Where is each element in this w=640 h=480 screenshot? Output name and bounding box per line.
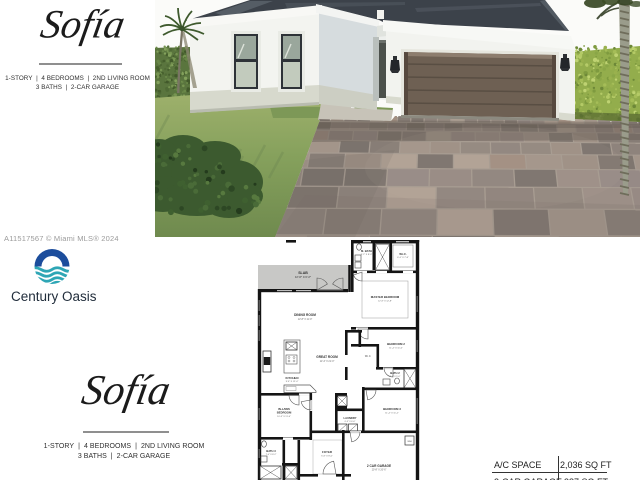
svg-text:12'-8" X 11'-0": 12'-8" X 11'-0" xyxy=(298,319,313,321)
svg-text:9'-6" X 12'-4": 9'-6" X 12'-4" xyxy=(286,381,299,383)
svg-text:W/H: W/H xyxy=(407,441,412,443)
svg-text:6'-4" X 7'-8": 6'-4" X 7'-8" xyxy=(397,257,409,259)
svg-text:LAUNDRY: LAUNDRY xyxy=(344,416,357,420)
svg-text:9'-2" X 8'-0": 9'-2" X 8'-0" xyxy=(361,254,373,256)
svg-text:11'-4" X 11'-6": 11'-4" X 11'-6" xyxy=(389,348,403,350)
svg-text:FOYER: FOYER xyxy=(322,450,333,454)
svg-text:BEDROOM: BEDROOM xyxy=(277,411,292,415)
svg-text:Sofía: Sofía xyxy=(37,2,128,47)
svg-text:SLAB: SLAB xyxy=(298,271,308,275)
svg-text:BEDROOM 3: BEDROOM 3 xyxy=(383,407,401,411)
svg-text:12'-4" X 21'-0": 12'-4" X 21'-0" xyxy=(320,361,335,363)
svg-text:6'-3" X 6'-6": 6'-3" X 6'-6" xyxy=(345,421,356,423)
svg-text:BATH 2: BATH 2 xyxy=(390,371,400,375)
svg-text:W.I.C.: W.I.C. xyxy=(399,252,407,256)
svg-text:DINING ROOM: DINING ROOM xyxy=(294,313,316,317)
svg-text:M. BATH: M. BATH xyxy=(361,249,372,253)
svg-text:5'-8" X 8'-0": 5'-8" X 8'-0" xyxy=(321,456,333,458)
svg-text:2 CAR GARAGE: 2 CAR GARAGE xyxy=(367,464,391,468)
svg-text:11'-4" X 11'-2": 11'-4" X 11'-2" xyxy=(385,413,399,415)
svg-text:20'-8" X 20'-6": 20'-8" X 20'-6" xyxy=(372,470,387,472)
svg-text:BEDROOM 2: BEDROOM 2 xyxy=(387,342,405,346)
svg-text:12'-8" X 12'-8": 12'-8" X 12'-8" xyxy=(378,301,392,303)
svg-text:MASTER BEDROOM: MASTER BEDROOM xyxy=(371,295,400,299)
svg-text:KITCHEN: KITCHEN xyxy=(286,376,299,380)
svg-text:W.I.C.: W.I.C. xyxy=(365,356,372,358)
svg-text:GREAT ROOM: GREAT ROOM xyxy=(316,355,338,359)
svg-text:Sofía: Sofía xyxy=(78,367,174,414)
svg-text:10'-3" X 11'-4": 10'-3" X 11'-4" xyxy=(277,416,291,418)
svg-text:12'-8" X 6'-2": 12'-8" X 6'-2" xyxy=(295,275,312,279)
svg-text:8'-0" X 5'-0": 8'-0" X 5'-0" xyxy=(390,376,401,378)
svg-text:BATH 3: BATH 3 xyxy=(266,449,276,453)
